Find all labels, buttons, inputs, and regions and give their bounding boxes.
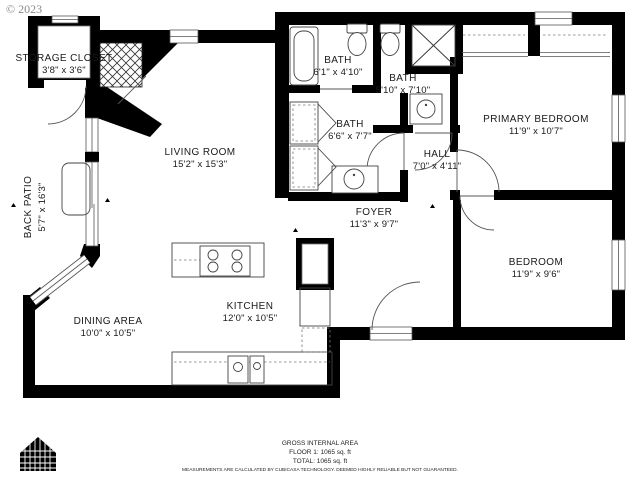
room-dims-foyer: 11'3" x 9'7": [350, 219, 399, 230]
room-label-dining-area: DINING AREA: [74, 316, 143, 327]
room-dims-storage-closet: 3'8" x 3'6": [42, 65, 86, 76]
refrigerator: [300, 288, 330, 352]
room-dims-bath-top-right: 5'10" x 7'10": [376, 85, 431, 96]
pantry-block: [296, 238, 334, 290]
stove-burner: [208, 250, 218, 260]
bathroom-sink: [332, 166, 378, 193]
copyright-text: © 2023: [6, 2, 42, 16]
toilet: [380, 24, 400, 56]
room-label-living-room: LIVING ROOM: [164, 147, 235, 158]
room-label-foyer: FOYER: [356, 207, 392, 218]
kitchen-counter-stove: [172, 243, 264, 277]
total-area-line: TOTAL: 1065 sq. ft: [293, 458, 348, 465]
kitchen-sink-counter: [172, 352, 332, 385]
room-label-primary-bedroom: PRIMARY BEDROOM: [483, 114, 589, 125]
cubicasa-house-logo: [20, 437, 56, 471]
bathroom-sink: [410, 94, 442, 124]
room-dims-back-patio: 5'7" x 16'3": [37, 182, 48, 231]
room-dims-dining-area: 10'0" x 10'5": [81, 328, 136, 339]
shower: [412, 25, 455, 66]
room-label-bath-middle: BATH: [336, 119, 364, 130]
room-label-kitchen: KITCHEN: [227, 301, 274, 312]
room-label-bath-top-left: BATH: [324, 55, 352, 66]
room-dims-bath-top-left: 6'1" x 4'10": [313, 67, 362, 78]
room-label-bath-top-right: BATH: [389, 73, 417, 84]
linen-closet: [290, 102, 336, 190]
toilet: [347, 24, 367, 56]
measurement-disclaimer: MEASUREMENTS ARE CALCULATED BY CUBICASA …: [182, 467, 458, 473]
stove-burner: [232, 250, 242, 260]
stove-burner: [232, 262, 242, 272]
room-label-hall: HALL: [424, 149, 451, 160]
room-label-back-patio: BACK PATIO: [23, 176, 34, 239]
floor-plan-page: © 2023: [0, 0, 640, 480]
room-label-storage-closet: STORAGE CLOSET: [15, 53, 112, 64]
bedroom-door-arc: [460, 196, 494, 230]
stove-burner: [208, 262, 218, 272]
foyer-closet-door-arc: [372, 282, 420, 330]
floor-plan-drawing: © 2023: [0, 0, 640, 480]
room-dims-living-room: 15'2" x 15'3": [173, 159, 228, 170]
primary-bedroom-door-arc: [457, 150, 499, 192]
room-dims-bath-middle: 6'6" x 7'7": [328, 131, 372, 142]
storage-door-arc: [48, 86, 86, 124]
entry-walkway-hatch: [100, 43, 142, 87]
floor-area-line: FLOOR 1: 1065 sq. ft: [289, 449, 351, 456]
room-dims-bedroom: 11'9" x 9'6": [512, 269, 561, 280]
bath-middle-door-arc: [367, 133, 404, 170]
room-label-bedroom: BEDROOM: [509, 257, 563, 268]
footer: GROSS INTERNAL AREA FLOOR 1: 1065 sq. ft…: [182, 440, 458, 473]
gross-internal-area-title: GROSS INTERNAL AREA: [282, 440, 359, 447]
room-dims-primary-bedroom: 11'9" x 10'7": [509, 126, 563, 137]
room-dims-kitchen: 12'0" x 10'5": [223, 313, 278, 324]
room-dims-hall: 7'0" x 4'11": [413, 161, 462, 172]
